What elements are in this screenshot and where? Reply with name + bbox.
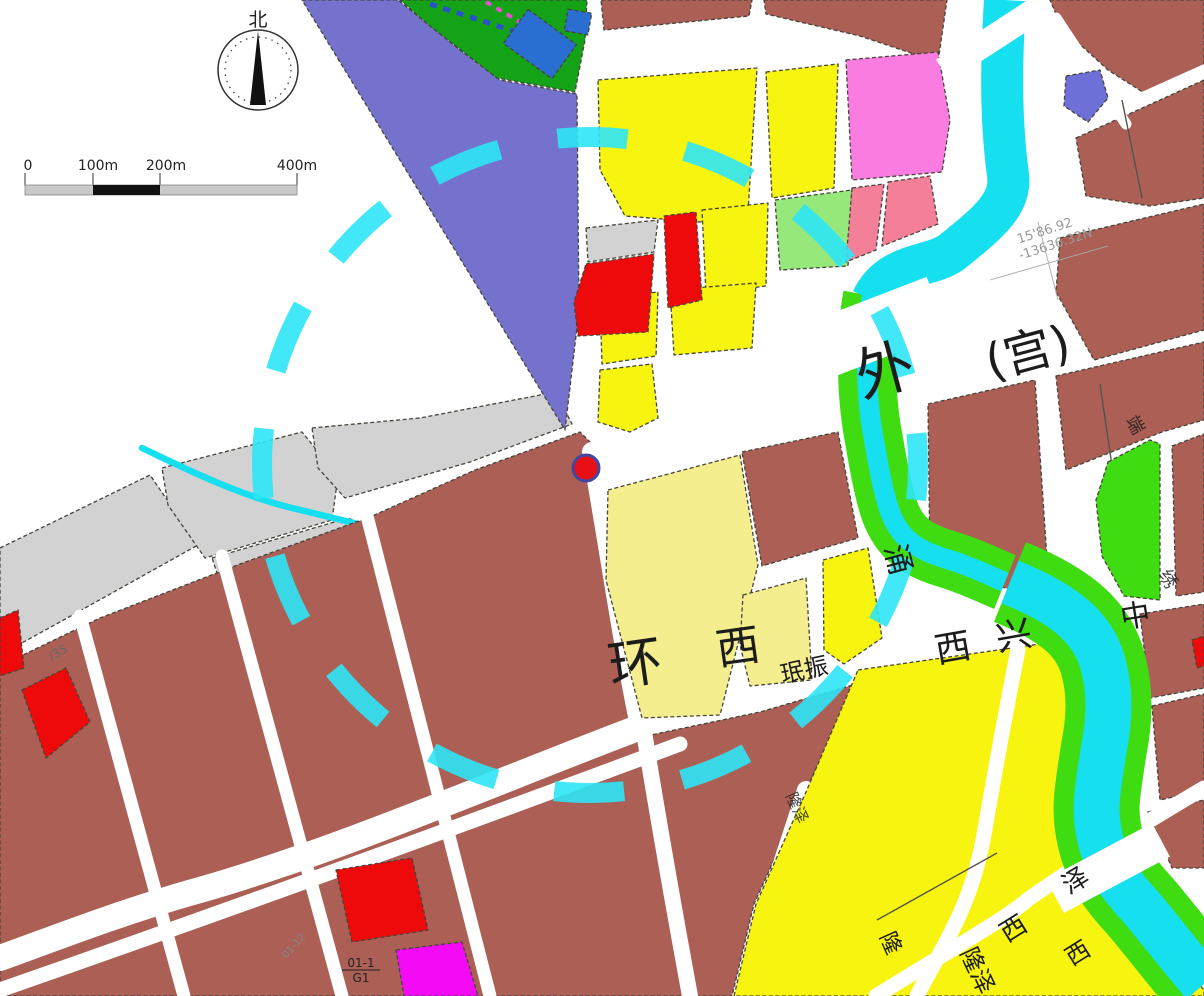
svg-text:0: 0 — [24, 158, 33, 174]
pink-parcel — [846, 52, 950, 180]
label-huan: 环 — [604, 629, 666, 699]
green-parcel-right — [1096, 440, 1160, 600]
label-xi-hidden: 西 — [713, 619, 764, 676]
svg-text:G1: G1 — [353, 971, 370, 985]
scale-bar: 0 100m 200m 400m — [24, 158, 318, 195]
label-zhong: 中 — [1118, 597, 1153, 636]
svg-text:200m: 200m — [146, 158, 186, 174]
compass-needle — [250, 31, 266, 105]
label-xing: 兴 — [993, 613, 1036, 660]
scale-bar-black-segment — [93, 185, 160, 195]
planning-map: 北 0 100m 200m 400m 外 (宫) 环 西 珉振 涌 西 兴 中 … — [0, 0, 1204, 996]
svg-text:01-1: 01-1 — [347, 956, 374, 970]
station-dot — [573, 455, 599, 481]
compass: 北 — [218, 9, 298, 110]
svg-text:100m: 100m — [78, 158, 118, 174]
map-canvas: 北 0 100m 200m 400m 外 (宫) 环 西 珉振 涌 西 兴 中 … — [0, 0, 1204, 996]
svg-text:400m: 400m — [277, 158, 317, 174]
label-xi1: 西 — [932, 625, 975, 672]
north-label: 北 — [248, 9, 267, 31]
